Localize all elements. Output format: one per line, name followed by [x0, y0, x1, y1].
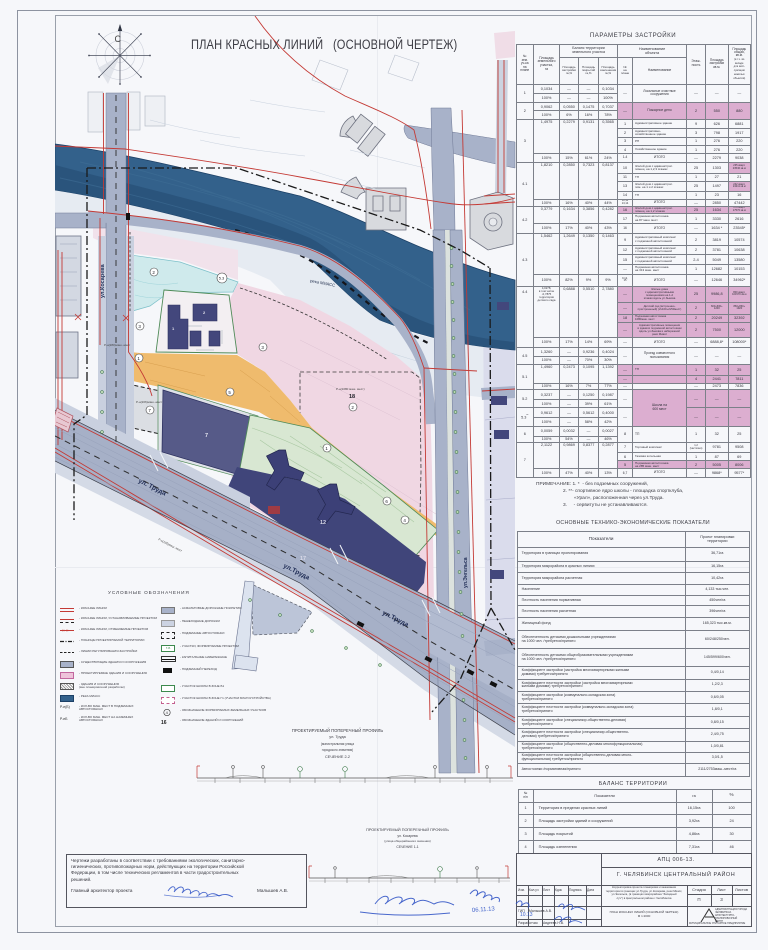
svg-text:06.11.13: 06.11.13 [472, 906, 496, 914]
svg-text:10.13: 10.13 [520, 912, 533, 918]
svg-text:ул.Косарева: ул.Косарева [100, 263, 106, 298]
svg-text:4: 4 [166, 710, 169, 715]
svg-text:C: C [115, 34, 122, 44]
svg-text:ул.Энгельса: ул.Энгельса [463, 557, 469, 588]
svg-text:Р-н(1080 маш. мест): Р-н(1080 маш. мест) [336, 387, 365, 391]
svg-text:12: 12 [320, 520, 326, 526]
svg-text:18: 18 [349, 394, 355, 400]
svg-text:17: 17 [300, 556, 306, 562]
svg-text:5.3: 5.3 [219, 276, 225, 281]
svg-text:Р-н(280)маш.-мест: Р-н(280)маш.-мест [104, 343, 131, 347]
svg-text:Р-н(206)маш.-мест: Р-н(206)маш.-мест [136, 400, 163, 404]
svg-text:Р-н(105)маш.-мест: Р-н(105)маш.-мест [158, 537, 184, 553]
svg-text:7: 7 [205, 433, 208, 439]
